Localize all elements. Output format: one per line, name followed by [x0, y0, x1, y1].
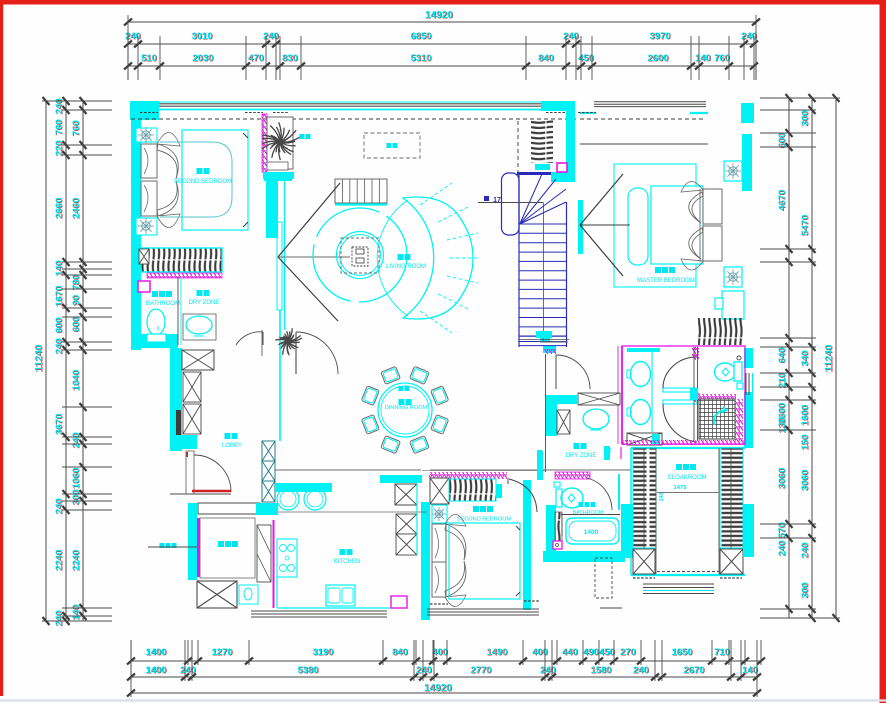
svg-text:140: 140	[742, 664, 758, 675]
svg-text:600: 600	[776, 132, 787, 148]
svg-text:150: 150	[799, 434, 810, 450]
svg-text:SECOND BEDROOM: SECOND BEDROOM	[174, 179, 232, 185]
svg-text:210: 210	[776, 372, 787, 388]
svg-text:2030: 2030	[193, 52, 214, 63]
svg-text:LOBBY: LOBBY	[222, 443, 242, 449]
svg-text:1650: 1650	[672, 646, 693, 657]
svg-text:780: 780	[70, 274, 81, 290]
svg-text:760: 760	[53, 119, 64, 135]
svg-text:300: 300	[70, 489, 81, 505]
svg-text:400: 400	[532, 646, 548, 657]
svg-text:3060: 3060	[776, 468, 787, 489]
svg-text:240: 240	[53, 98, 64, 114]
svg-text:640: 640	[776, 347, 787, 363]
svg-text:2600: 2600	[648, 52, 669, 63]
svg-text:240: 240	[263, 30, 279, 41]
svg-text:1400: 1400	[146, 646, 167, 657]
svg-text:760: 760	[70, 120, 81, 136]
svg-text:3970: 3970	[650, 30, 671, 41]
svg-text:SECOND BEDROOM: SECOND BEDROOM	[457, 517, 512, 523]
svg-text:4670: 4670	[776, 190, 787, 211]
svg-text:760: 760	[714, 52, 730, 63]
svg-text:240: 240	[53, 610, 64, 626]
svg-text:240: 240	[741, 30, 757, 41]
svg-text:490: 490	[583, 646, 599, 657]
svg-text:600: 600	[53, 317, 64, 333]
svg-text:240: 240	[53, 338, 64, 354]
svg-text:1270: 1270	[212, 646, 233, 657]
svg-text:DINNING ROOM: DINNING ROOM	[385, 405, 428, 411]
svg-text:710: 710	[714, 646, 730, 657]
svg-text:5470: 5470	[799, 215, 810, 236]
svg-text:DRY ZONE: DRY ZONE	[566, 453, 597, 459]
svg-text:240: 240	[540, 664, 556, 675]
svg-text:830: 830	[282, 52, 298, 63]
svg-text:510: 510	[141, 52, 157, 63]
svg-text:270: 270	[620, 646, 636, 657]
svg-text:11240: 11240	[824, 344, 835, 372]
svg-text:CLOAKROOM: CLOAKROOM	[667, 475, 706, 481]
svg-text:14920: 14920	[425, 10, 453, 21]
svg-text:240: 240	[125, 30, 141, 41]
svg-text:1040: 1040	[70, 370, 81, 391]
svg-text:MASTER BEDROOM: MASTER BEDROOM	[637, 278, 695, 284]
svg-text:LIVING ROOM: LIVING ROOM	[386, 264, 426, 270]
svg-text:2460: 2460	[70, 198, 81, 219]
svg-text:3060: 3060	[799, 470, 810, 491]
svg-text:130: 130	[776, 417, 787, 433]
svg-text:2660: 2660	[53, 198, 64, 219]
svg-text:340: 340	[799, 350, 810, 366]
svg-text:14920: 14920	[424, 683, 452, 694]
svg-text:5380: 5380	[298, 664, 319, 675]
svg-text:2240: 2240	[70, 550, 81, 571]
svg-text:140: 140	[53, 260, 64, 276]
svg-text:300: 300	[799, 582, 810, 598]
svg-text:140: 140	[70, 604, 81, 620]
svg-text:3190: 3190	[313, 646, 334, 657]
svg-text:240: 240	[563, 30, 579, 41]
svg-text:400: 400	[432, 646, 448, 657]
svg-text:440: 440	[562, 646, 578, 657]
svg-text:1400: 1400	[584, 529, 599, 536]
svg-text:DRY ZONE: DRY ZONE	[189, 300, 220, 306]
svg-text:90: 90	[70, 295, 81, 305]
svg-text:2770: 2770	[471, 664, 492, 675]
svg-text:240: 240	[633, 664, 649, 675]
svg-text:240: 240	[416, 664, 432, 675]
svg-text:BATHROOM: BATHROOM	[146, 301, 180, 307]
svg-text:1580: 1580	[591, 664, 612, 675]
svg-text:1400: 1400	[146, 664, 167, 675]
svg-text:240: 240	[659, 493, 665, 502]
svg-text:BATHROOM: BATHROOM	[573, 510, 604, 516]
svg-text:470: 470	[248, 52, 264, 63]
svg-text:240: 240	[53, 498, 64, 514]
svg-text:1600: 1600	[799, 405, 810, 426]
svg-text:3670: 3670	[53, 414, 64, 435]
svg-text:220: 220	[53, 140, 64, 156]
svg-text:450: 450	[578, 52, 594, 63]
svg-text:6850: 6850	[411, 30, 432, 41]
svg-text:KITCHEN: KITCHEN	[334, 559, 360, 565]
svg-text:240: 240	[799, 542, 810, 558]
svg-text:2670: 2670	[684, 664, 705, 675]
svg-text:840: 840	[392, 646, 408, 657]
svg-text:3010: 3010	[192, 30, 213, 41]
svg-text:140: 140	[695, 52, 711, 63]
svg-text:240: 240	[70, 432, 81, 448]
svg-text:1490: 1490	[487, 646, 508, 657]
svg-text:1060: 1060	[70, 468, 81, 489]
svg-text:2240: 2240	[53, 550, 64, 571]
svg-text:600: 600	[70, 316, 81, 332]
svg-text:11240: 11240	[34, 344, 45, 372]
svg-text:240: 240	[180, 664, 196, 675]
svg-text:5310: 5310	[411, 52, 432, 63]
svg-text:1475: 1475	[674, 485, 688, 491]
svg-text:240: 240	[776, 540, 787, 556]
svg-text:450: 450	[599, 646, 615, 657]
svg-text:840: 840	[538, 52, 554, 63]
svg-text:570: 570	[776, 522, 787, 538]
svg-text:300: 300	[799, 110, 810, 126]
